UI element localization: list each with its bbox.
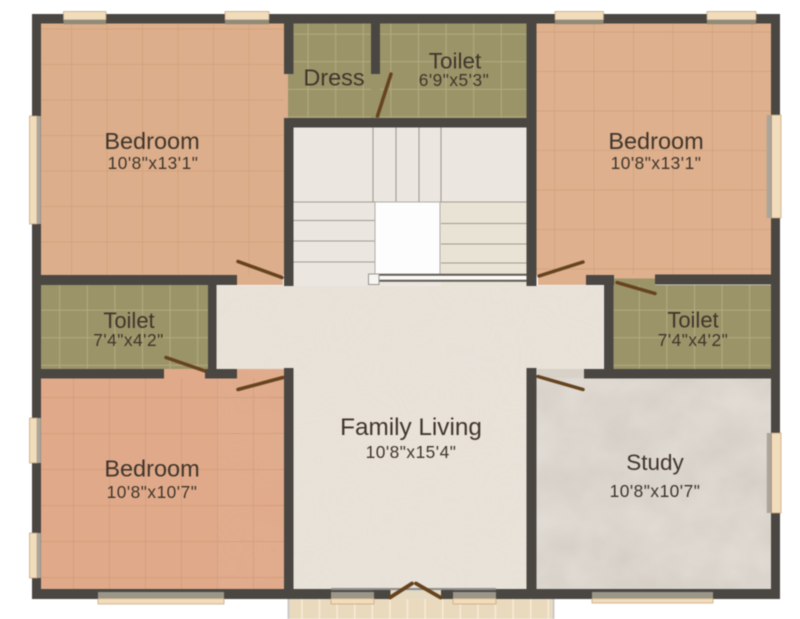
svg-text:7'4"x4'2": 7'4"x4'2" [658, 330, 728, 350]
svg-text:10'8"x13'1": 10'8"x13'1" [611, 153, 702, 173]
svg-text:Bedroom: Bedroom [104, 456, 199, 482]
svg-text:10'8"x13'1": 10'8"x13'1" [108, 153, 199, 173]
svg-text:10'8"x10'7": 10'8"x10'7" [610, 481, 701, 501]
svg-text:10'8"x10'7": 10'8"x10'7" [107, 482, 198, 502]
svg-text:Family Living: Family Living [340, 414, 482, 441]
svg-text:10'8"x15'4": 10'8"x15'4" [366, 442, 457, 462]
svg-text:Study: Study [626, 450, 684, 475]
svg-text:6'9"x5'3": 6'9"x5'3" [419, 70, 489, 90]
svg-text:Dress: Dress [303, 65, 364, 91]
svg-text:Bedroom: Bedroom [104, 128, 199, 154]
svg-text:7'4"x4'2": 7'4"x4'2" [93, 330, 163, 350]
svg-text:Toilet: Toilet [667, 308, 718, 333]
svg-text:Bedroom: Bedroom [608, 128, 703, 154]
